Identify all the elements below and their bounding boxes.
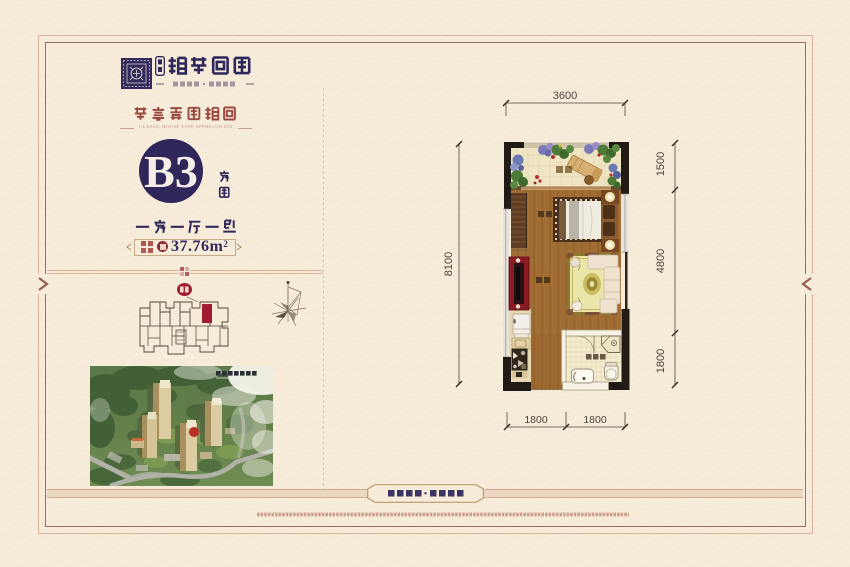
- svg-text:1800: 1800: [583, 414, 607, 426]
- svg-text:8100: 8100: [443, 252, 455, 276]
- svg-text:3600: 3600: [553, 90, 577, 102]
- svg-text:1800: 1800: [655, 349, 667, 373]
- svg-text:1800: 1800: [524, 414, 548, 426]
- svg-text:1500: 1500: [655, 152, 667, 176]
- svg-text:4800: 4800: [655, 249, 667, 273]
